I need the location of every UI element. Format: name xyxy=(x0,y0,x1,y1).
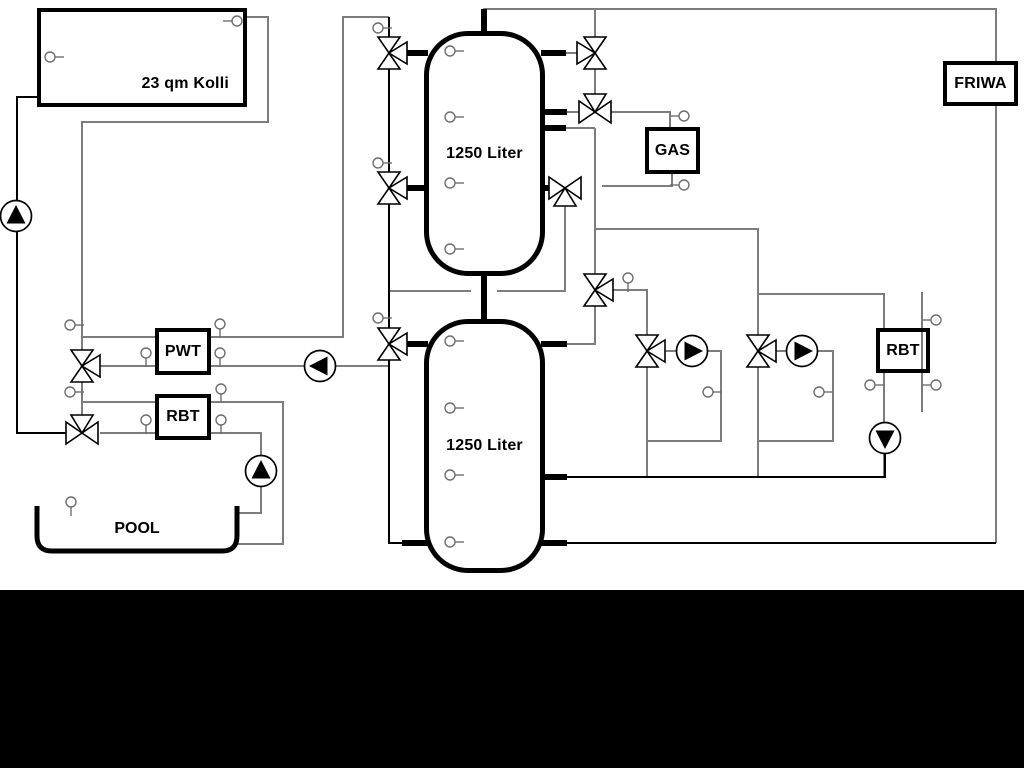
three-way-valve-icon xyxy=(378,37,407,69)
pump-icon xyxy=(305,351,336,382)
three-way-valve-icon xyxy=(577,37,606,69)
pool-label: POOL xyxy=(37,506,237,551)
gas-boiler-box: GAS xyxy=(645,127,700,174)
gas-label: GAS xyxy=(655,142,690,160)
temperature-sensor-icon xyxy=(215,348,225,367)
solar-collector-label: 23 qm Kolli xyxy=(141,75,229,93)
three-way-valve-icon xyxy=(747,335,776,367)
temperature-sensor-icon xyxy=(922,315,941,325)
pwt-label: PWT xyxy=(165,343,201,361)
three-way-valve-icon xyxy=(378,172,407,204)
buffer-tank-bottom: 1250 Liter xyxy=(424,319,545,573)
pump-icon xyxy=(246,456,277,487)
temperature-sensor-icon xyxy=(141,415,151,434)
pipe-heating-supply xyxy=(566,128,884,344)
rbt-pool-label: RBT xyxy=(166,408,199,426)
friwa-fresh-water-box: FRIWA xyxy=(943,61,1018,106)
pipe-heating-circuit-2 xyxy=(758,351,833,477)
bottom-black-bar xyxy=(0,590,1024,768)
temperature-sensor-icon xyxy=(216,415,226,434)
three-way-valve-icon xyxy=(584,274,613,306)
temperature-sensor-icon xyxy=(703,387,722,397)
three-way-valve-icon xyxy=(579,94,611,123)
pipe-top-bus-friwa xyxy=(483,9,996,543)
pipe-left-column xyxy=(389,17,404,543)
temperature-sensor-icon xyxy=(215,319,225,338)
pwt-heat-exchanger-box: PWT xyxy=(155,328,211,375)
temperature-sensor-icon xyxy=(814,387,833,397)
temperature-sensor-icon xyxy=(922,380,941,390)
temperature-sensor-icon xyxy=(865,380,884,390)
buffer-tank-top: 1250 Liter xyxy=(424,31,545,276)
hydraulic-schematic: 23 qm Kolli 1250 Liter 1250 Liter PWT RB… xyxy=(0,0,1024,768)
temperature-sensor-icon xyxy=(141,348,151,367)
pipe-return-rail-upper xyxy=(567,454,885,477)
rbt-pool-box: RBT xyxy=(155,394,211,440)
three-way-valve-icon xyxy=(549,177,581,206)
pipe-heating-circuit-1 xyxy=(647,351,721,477)
rbt-right-label: RBT xyxy=(886,342,919,360)
solar-collector-box: 23 qm Kolli xyxy=(37,8,247,107)
three-way-valve-icon xyxy=(636,335,665,367)
three-way-valve-icon xyxy=(378,328,407,360)
temperature-sensor-icon xyxy=(670,111,689,121)
pump-icon xyxy=(787,336,818,367)
three-way-valve-icon xyxy=(71,350,100,382)
temperature-sensor-icon xyxy=(216,384,226,403)
pipe-solar-flow xyxy=(17,97,66,433)
buffer-tank-top-label: 1250 Liter xyxy=(446,145,523,163)
buffer-tank-bottom-label: 1250 Liter xyxy=(446,437,523,455)
three-way-valve-icon xyxy=(66,415,98,444)
pump-icon xyxy=(677,336,708,367)
rbt-right-box: RBT xyxy=(876,328,930,373)
friwa-label: FRIWA xyxy=(954,75,1007,93)
pump-icon xyxy=(1,201,32,232)
pump-icon xyxy=(870,423,901,454)
